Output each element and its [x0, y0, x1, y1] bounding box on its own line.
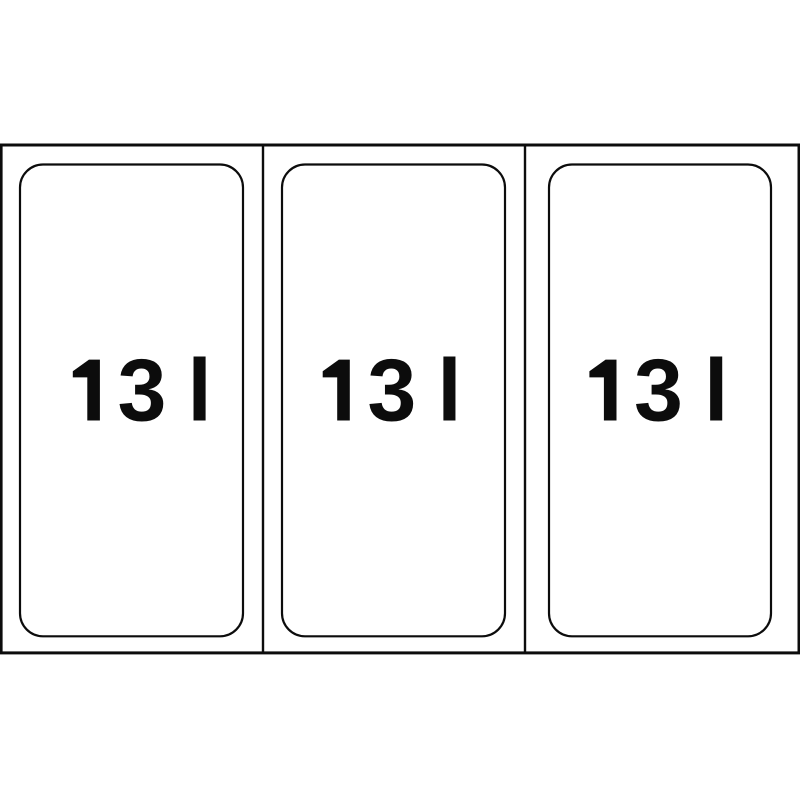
svg-text:l: l — [437, 341, 461, 440]
svg-text:l: l — [187, 341, 211, 440]
svg-text:3: 3 — [634, 341, 683, 440]
svg-text:l: l — [704, 341, 728, 440]
svg-text:3: 3 — [367, 341, 416, 440]
svg-text:3: 3 — [117, 341, 166, 440]
